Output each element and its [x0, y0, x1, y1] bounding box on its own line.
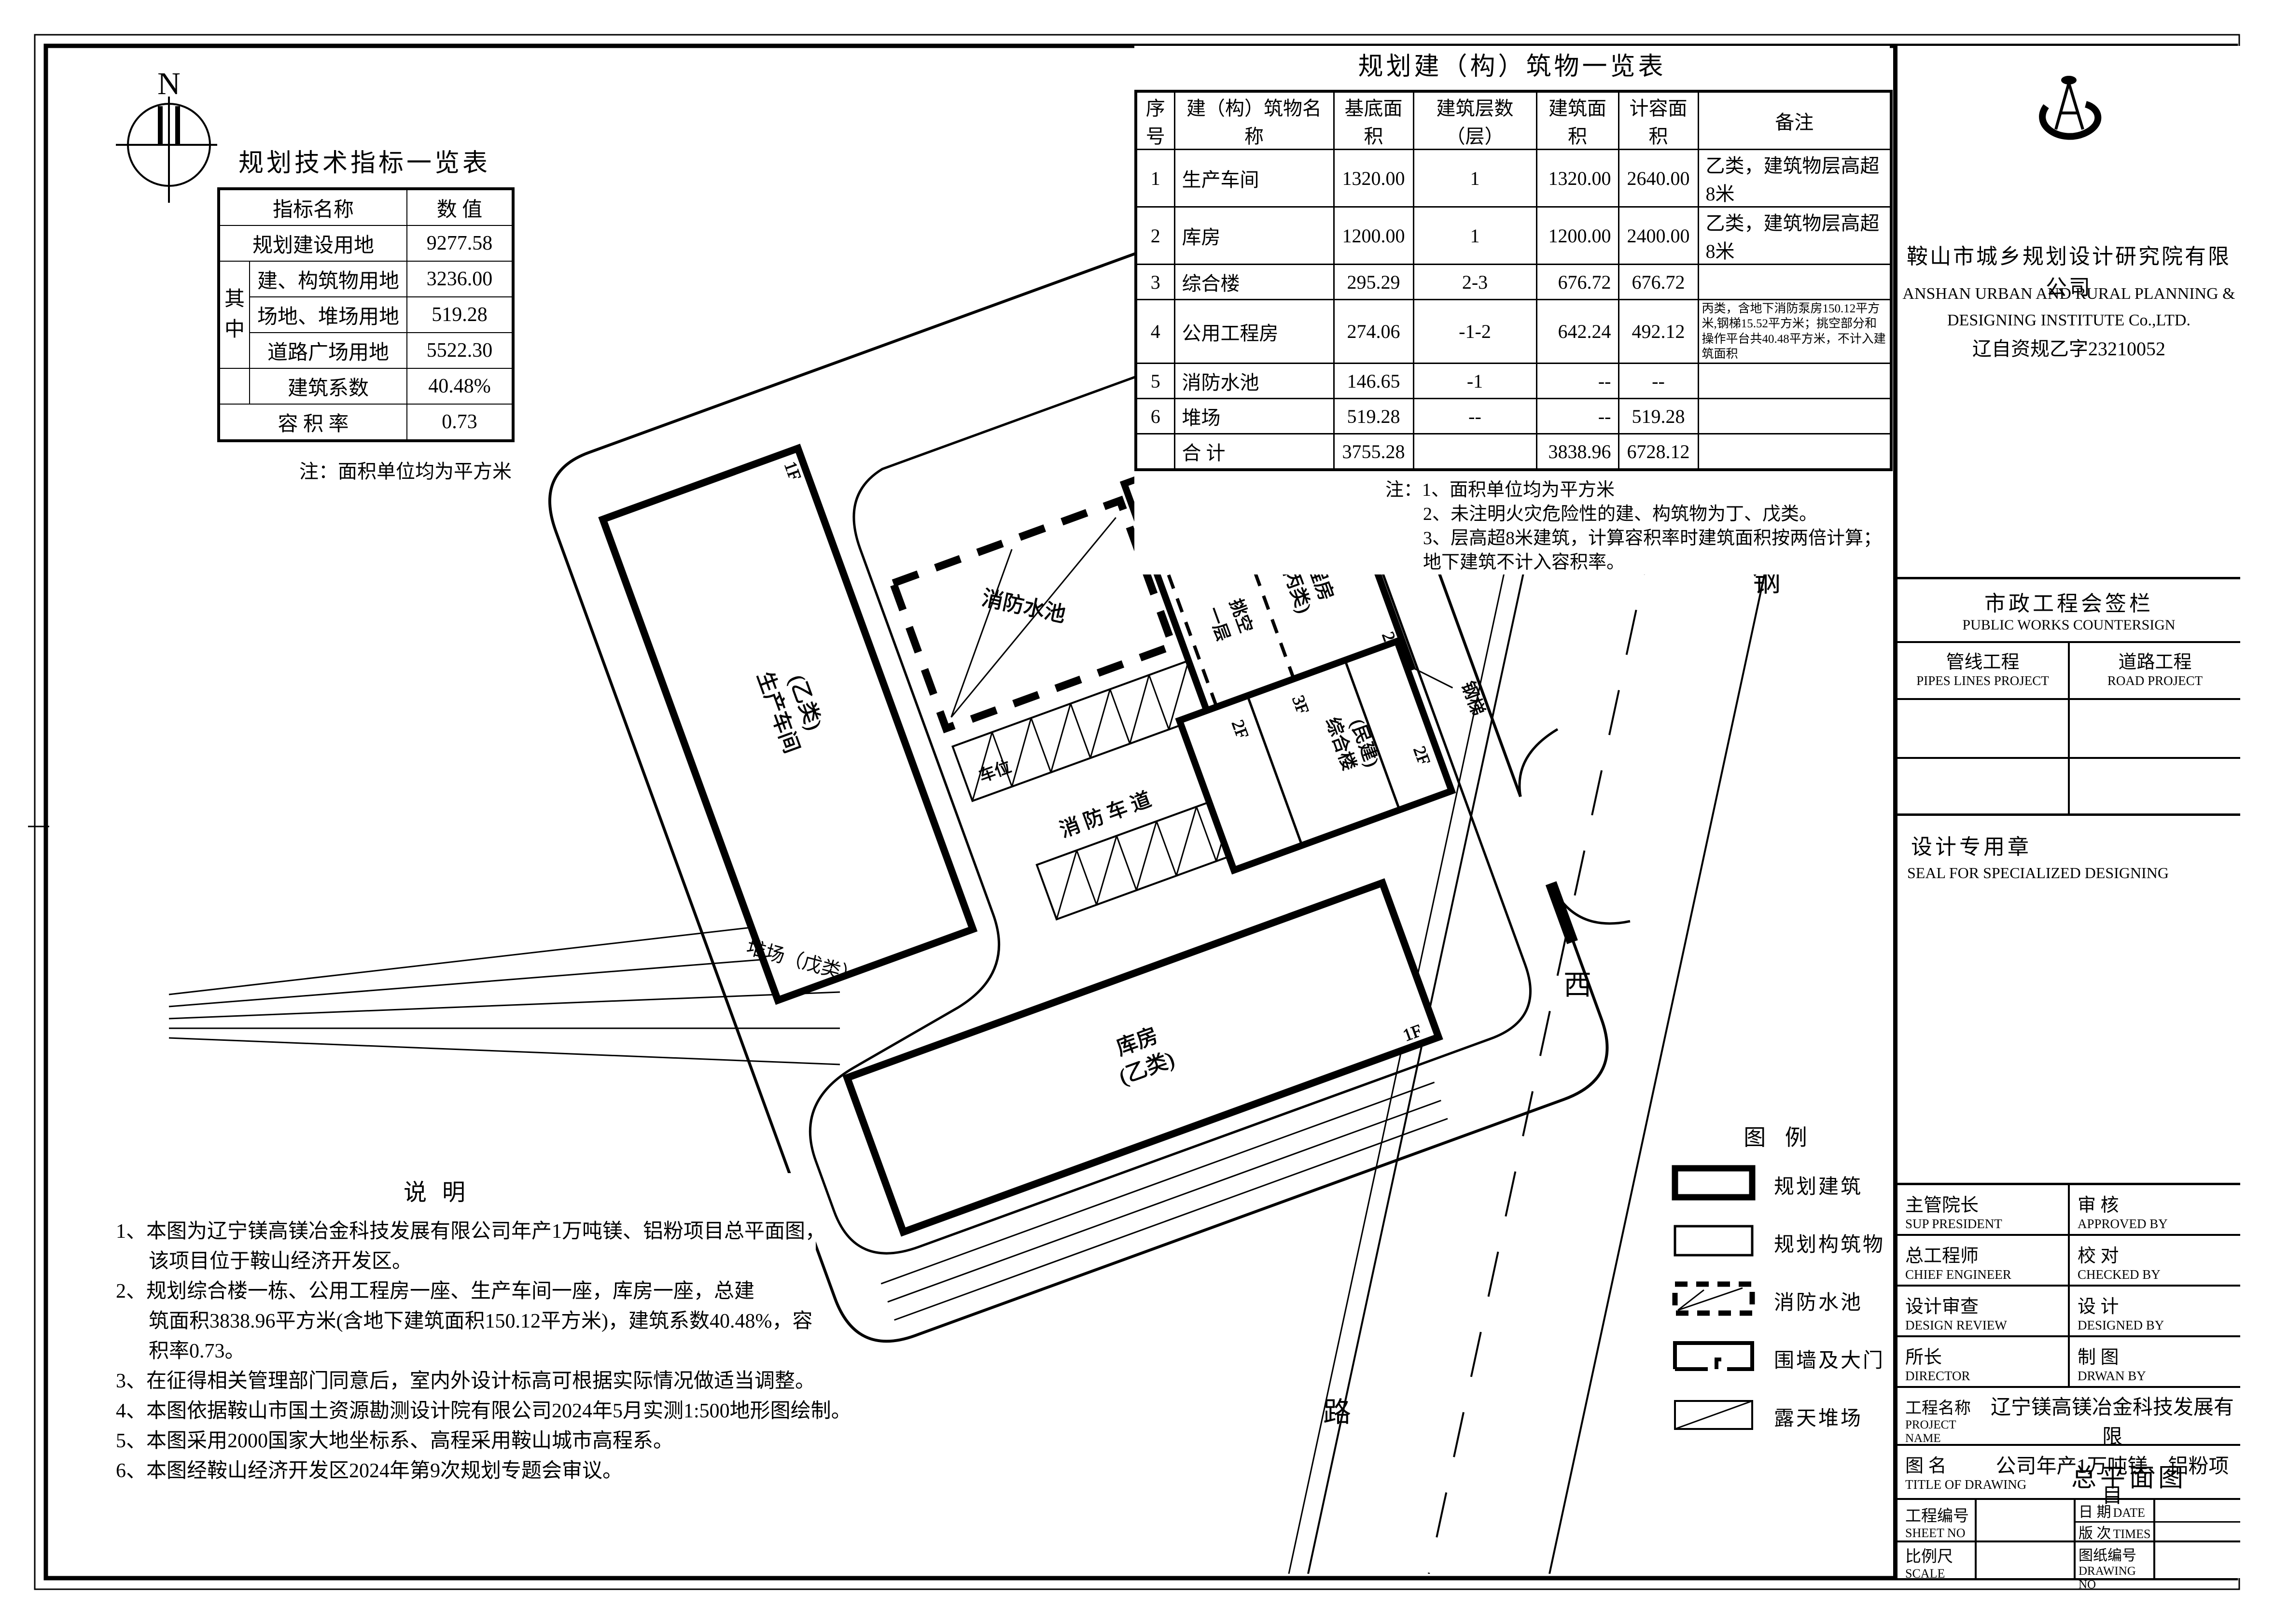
seal-label-en: SEAL FOR SPECIALIZED DESIGNING	[1897, 860, 2240, 882]
col-header: 备注	[1698, 91, 1891, 150]
chief-engineer-label-en: CHIEF ENGINEER	[1905, 1267, 2068, 1282]
approved-by-label-en: APPROVED BY	[2078, 1217, 2240, 1232]
tech-row-name: 建、构筑物用地	[250, 261, 407, 297]
cell-area: 642.24	[1536, 300, 1618, 364]
note-line: 5、本图采用2000国家大地坐标系、高程采用鞍山城市高程系。	[111, 1426, 816, 1456]
cell-no: 5	[1136, 364, 1174, 399]
checked-by-label-en: CHECKED BY	[2078, 1267, 2240, 1282]
design-review-label-cn: 设计审查	[1905, 1291, 2068, 1318]
project-name-label-en: PROJECT NAME	[1905, 1418, 1987, 1445]
legend-planned-structure-icon	[1670, 1221, 1757, 1260]
tech-row-name: 规划建设用地	[219, 225, 407, 261]
cell-no: 4	[1136, 300, 1174, 364]
tech-table-note: 注：面积单位均为平方米	[217, 456, 512, 484]
sup-president-label-cn: 主管院长	[1905, 1190, 2068, 1217]
road-char-3: 路	[1323, 1397, 1351, 1428]
legend-item-label: 消防水池	[1774, 1286, 1863, 1316]
gate-bar	[1551, 883, 1572, 942]
cell-far-area: --	[1618, 364, 1698, 399]
buildings-table-block: 规划建（构）筑物一览表 序号 建（构）筑物名称 基底面积 建筑层数（层） 建筑面…	[1134, 46, 1890, 574]
drawn-by-label-en: DRWAN BY	[2078, 1369, 2240, 1384]
cell-storeys: --	[1413, 399, 1536, 434]
tech-row-value: 9277.58	[407, 225, 513, 261]
cell-name: 公用工程房	[1174, 300, 1334, 364]
buildings-note: 2、未注明火灾危险性的建、构筑物为丁、戊类。	[1385, 502, 1890, 526]
cell-storeys: 2-3	[1413, 265, 1536, 300]
seal-section: 设计专用章 SEAL FOR SPECIALIZED DESIGNING	[1897, 816, 2240, 1185]
company-license: 辽自资规乙字23210052	[1897, 333, 2240, 361]
legend-wall-gate-icon	[1670, 1337, 1757, 1376]
ladder-label: 钢梯	[1458, 679, 1488, 718]
note-line: 3、在征得相关管理部门同意后，室内外设计标高可根据实际情况做适当调整。	[111, 1366, 816, 1396]
note-line: 该项目位于鞍山经济开发区。	[111, 1246, 816, 1276]
sign-row: 总工程师CHIEF ENGINEER 校 对CHECKED BY	[1897, 1236, 2240, 1287]
drawn-by-label-cn: 制 图	[2078, 1342, 2240, 1369]
table-row: 3 综合楼 295.29 2-3 676.72 676.72	[1136, 265, 1891, 300]
title-panel: 鞍山市城乡规划设计研究院有限公司 ANSHAN URBAN AND RURAL …	[1893, 46, 2240, 1578]
total-label: 合 计	[1174, 434, 1334, 470]
cell-far-area: 2640.00	[1618, 150, 1698, 207]
cell-remark	[1698, 364, 1891, 399]
note-line: 2、规划综合楼一栋、公用工程房一座、生产车间一座，库房一座，总建	[111, 1276, 816, 1306]
notes-title: 说 明	[111, 1173, 763, 1207]
table-row: 6 堆场 519.28 -- -- 519.28	[1136, 399, 1891, 434]
cell-footprint: 146.65	[1334, 364, 1413, 399]
company-name-en1: ANSHAN URBAN AND RURAL PLANNING &	[1897, 285, 2240, 303]
cell-no: 6	[1136, 399, 1174, 434]
legend-fire-pool-icon	[1670, 1279, 1757, 1318]
drawing-sheet: 生产车间 (乙类) 1F 消防水池 1D 一层 挑空 2F/1D 公用工程房 (…	[0, 0, 2274, 1624]
total-footprint: 3755.28	[1334, 434, 1413, 470]
note-line: 4、本图依据鞍山市国土资源勘测设计院有限公司2024年5月实测1:500地形图绘…	[111, 1396, 816, 1426]
legend-item-label: 围墙及大门	[1774, 1344, 1885, 1373]
cell-storeys: -1-2	[1413, 300, 1536, 364]
cell-remark: 丙类，含地下消防泵房150.12平方米,钢梯15.52平方米；挑空部分和操作平台…	[1698, 300, 1891, 364]
checked-by-label-cn: 校 对	[2078, 1241, 2240, 1267]
times-label-en: TIMES	[2113, 1527, 2151, 1541]
cell-name: 生产车间	[1174, 150, 1334, 207]
seal-label-cn: 设计专用章	[1897, 816, 2240, 860]
cell-no: 2	[1136, 207, 1174, 265]
legend-block: 图 例 规划建筑 规划构筑物 消防水池 围墙及大门	[1670, 1120, 1887, 1472]
tech-row-name: 容 积 率	[219, 404, 407, 441]
date-label-en: DATE	[2113, 1506, 2145, 1520]
chief-engineer-label-cn: 总工程师	[1905, 1241, 2068, 1267]
sheet-no-value	[1975, 1500, 2074, 1542]
tech-among-label: 其 中	[219, 261, 250, 368]
dwg-no-label-cn: 图纸编号	[2079, 1543, 2153, 1565]
tech-header-name: 指标名称	[219, 189, 407, 225]
legend-item-label: 露天堆场	[1774, 1402, 1863, 1431]
tech-row-value: 5522.30	[407, 333, 513, 368]
cell-area: --	[1536, 364, 1618, 399]
tech-table-title: 规划技术指标一览表	[217, 142, 512, 179]
sign-row: 主管院长SUP PRESIDENT 审 核APPROVED BY	[1897, 1185, 2240, 1236]
designed-by-label-en: DESIGNED BY	[2078, 1318, 2240, 1333]
cell-far-area: 676.72	[1618, 265, 1698, 300]
road-project-label-cn: 道路工程	[2070, 647, 2240, 673]
tech-row-value: 40.48%	[407, 368, 513, 404]
company-logo-icon	[2028, 72, 2110, 150]
cell-far-area: 492.12	[1618, 300, 1698, 364]
note-line: 筑面积3838.96平方米(含地下建筑面积150.12平方米)，建筑系数40.4…	[111, 1306, 816, 1336]
sign-row: 设计审查DESIGN REVIEW 设 计DESIGNED BY	[1897, 1287, 2240, 1337]
drawing-title-label-en: TITLE OF DRAWING	[1905, 1477, 2033, 1492]
note-line: 积率0.73。	[111, 1336, 816, 1366]
project-name-row: 工程名称 PROJECT NAME 辽宁镁高镁冶金科技发展有限 公司年产1万吨镁…	[1897, 1388, 2240, 1446]
tech-row-value: 3236.00	[407, 261, 513, 297]
buildings-table: 序号 建（构）筑物名称 基底面积 建筑层数（层） 建筑面积 计容面积 备注 1 …	[1134, 90, 1893, 471]
cell-area: 1200.00	[1536, 207, 1618, 265]
date-label-cn: 日 期	[2074, 1504, 2111, 1520]
parking1-label: 车位	[977, 757, 1014, 786]
legend-title: 图 例	[1670, 1120, 1887, 1152]
tech-table: 指标名称 数 值 规划建设用地 9277.58 其 中 建、构筑物用地 3236…	[217, 187, 515, 442]
approved-by-label-cn: 审 核	[2078, 1190, 2240, 1217]
legend-item-label: 规划建筑	[1774, 1170, 1863, 1200]
scale-dwgno-row: 比例尺 SCALE 图纸编号 DRAWING NO	[1897, 1542, 2240, 1578]
buildings-table-title: 规划建（构）筑物一览表	[1134, 46, 1890, 82]
project-name-value: 辽宁镁高镁冶金科技发展有限	[1987, 1391, 2238, 1450]
cell-storeys: 1	[1413, 150, 1536, 207]
tech-header-value: 数 值	[407, 189, 513, 225]
cell-remark	[1698, 399, 1891, 434]
cell-remark	[1698, 265, 1891, 300]
cell-remark: 乙类，建筑物层高超8米	[1698, 207, 1891, 265]
cell-footprint: 1200.00	[1334, 207, 1413, 265]
total-area: 3838.96	[1536, 434, 1618, 470]
col-header: 序号	[1136, 91, 1174, 150]
col-header: 建（构）筑物名称	[1174, 91, 1334, 150]
company-name-en2: DESIGNING INSTITUTE Co.,LTD.	[1897, 311, 2240, 330]
cell-name: 堆场	[1174, 399, 1334, 434]
tech-row-name: 建筑系数	[250, 368, 407, 404]
sign-row: 所长DIRECTOR 制 图DRWAN BY	[1897, 1337, 2240, 1388]
director-label-cn: 所长	[1905, 1342, 2068, 1369]
cell-name: 库房	[1174, 207, 1334, 265]
dwg-no-label-en: DRAWING NO	[2079, 1565, 2153, 1592]
sup-president-label-en: SUP PRESIDENT	[1905, 1217, 2068, 1232]
tech-row-value: 0.73	[407, 404, 513, 441]
col-header: 计容面积	[1618, 91, 1698, 150]
table-row: 5 消防水池 146.65 -1 -- --	[1136, 364, 1891, 399]
sheet-no-label-cn: 工程编号	[1905, 1503, 1975, 1526]
project-name-label-cn: 工程名称	[1905, 1395, 1987, 1418]
note-line: 6、本图经鞍山经济开发区2024年第9次规划专题会审议。	[111, 1456, 816, 1486]
fire-lane-label: 消防车道	[1057, 787, 1158, 842]
buildings-note: 注：1、面积单位均为平方米	[1385, 478, 1890, 502]
col-header: 基底面积	[1334, 91, 1413, 150]
cell-area: --	[1536, 399, 1618, 434]
cell-footprint: 295.29	[1334, 265, 1413, 300]
countersign-title-en: PUBLIC WORKS COUNTERSIGN	[1897, 617, 2240, 633]
cell-area: 676.72	[1536, 265, 1618, 300]
tech-row-name: 场地、堆场用地	[250, 297, 407, 333]
tech-row-name: 道路广场用地	[250, 333, 407, 368]
notes-block: 说 明 1、本图为辽宁镁高镁冶金科技发展有限公司年产1万吨镁、铝粉项目总平面图，…	[111, 1173, 816, 1486]
cell-area: 1320.00	[1536, 150, 1618, 207]
total-far-area: 6728.12	[1618, 434, 1698, 470]
note-line: 1、本图为辽宁镁高镁冶金科技发展有限公司年产1万吨镁、铝粉项目总平面图，	[111, 1217, 816, 1246]
table-row: 2 库房 1200.00 1 1200.00 2400.00 乙类，建筑物层高超…	[1136, 207, 1891, 265]
designed-by-label-cn: 设 计	[2078, 1291, 2240, 1318]
drawing-title-row: 图 名 TITLE OF DRAWING 总平面图	[1897, 1446, 2240, 1500]
table-row: 1 生产车间 1320.00 1 1320.00 2640.00 乙类，建筑物层…	[1136, 150, 1891, 207]
stockyard-band	[169, 917, 840, 1064]
tech-table-block: 规划技术指标一览表 指标名称 数 值 规划建设用地 9277.58 其 中 建、…	[217, 142, 512, 484]
tech-row-value: 519.28	[407, 297, 513, 333]
legend-item-label: 规划构筑物	[1774, 1228, 1885, 1258]
sheet-no-label-en: SHEET NO	[1905, 1526, 1975, 1540]
pipes-project-label-cn: 管线工程	[1897, 647, 2068, 673]
cell-far-area: 2400.00	[1618, 207, 1698, 265]
cell-name: 消防水池	[1174, 364, 1334, 399]
cell-storeys: -1	[1413, 364, 1536, 399]
cell-name: 综合楼	[1174, 265, 1334, 300]
pipes-project-label-en: PIPES LINES PROJECT	[1897, 673, 2068, 688]
buildings-note: 3、层高超8米建筑，计算容积率时建筑面积按两倍计算；地下建筑不计入容积率。	[1385, 526, 1890, 574]
cell-footprint: 274.06	[1334, 300, 1413, 364]
table-row: 4 公用工程房 274.06 -1-2 642.24 492.12 丙类，含地下…	[1136, 300, 1891, 364]
drawing-title-label-cn: 图 名	[1905, 1451, 2033, 1477]
scale-label-en: SCALE	[1905, 1567, 1975, 1581]
cell-far-area: 519.28	[1618, 399, 1698, 434]
cell-no: 3	[1136, 265, 1174, 300]
countersign-title-cn: 市政工程会签栏	[1897, 579, 2240, 617]
company-section: 鞍山市城乡规划设计研究院有限公司 ANSHAN URBAN AND RURAL …	[1897, 46, 2240, 360]
legend-open-stockyard-icon	[1670, 1395, 1757, 1434]
countersign-section: 市政工程会签栏 PUBLIC WORKS COUNTERSIGN 管线工程 PI…	[1897, 579, 2240, 816]
table-total-row: 合 计 3755.28 3838.96 6728.12	[1136, 434, 1891, 470]
col-header: 建筑层数（层）	[1413, 91, 1536, 150]
cell-footprint: 1320.00	[1334, 150, 1413, 207]
sheetno-date-row: 工程编号 SHEET NO 日 期 DATE 版 次 TIMES	[1897, 1500, 2240, 1542]
design-review-label-en: DESIGN REVIEW	[1905, 1318, 2068, 1333]
cell-remark: 乙类，建筑物层高超8米	[1698, 150, 1891, 207]
legend-planned-building-icon	[1670, 1163, 1757, 1202]
cell-storeys: 1	[1413, 207, 1536, 265]
north-arrow-icon: N	[116, 66, 224, 203]
road-char-2: 西	[1563, 969, 1591, 1001]
col-header: 建筑面积	[1536, 91, 1618, 150]
scale-label-cn: 比例尺	[1905, 1543, 1975, 1567]
times-label-cn: 版 次	[2074, 1526, 2111, 1541]
drawing-title-value: 总平面图	[2033, 1457, 2226, 1494]
blank-section	[1897, 360, 2240, 579]
cell-no: 1	[1136, 150, 1174, 207]
director-label-en: DIRECTOR	[1905, 1369, 2068, 1384]
north-label: N	[157, 66, 181, 101]
road-project-label-en: ROAD PROJECT	[2070, 673, 2240, 688]
cell-footprint: 519.28	[1334, 399, 1413, 434]
